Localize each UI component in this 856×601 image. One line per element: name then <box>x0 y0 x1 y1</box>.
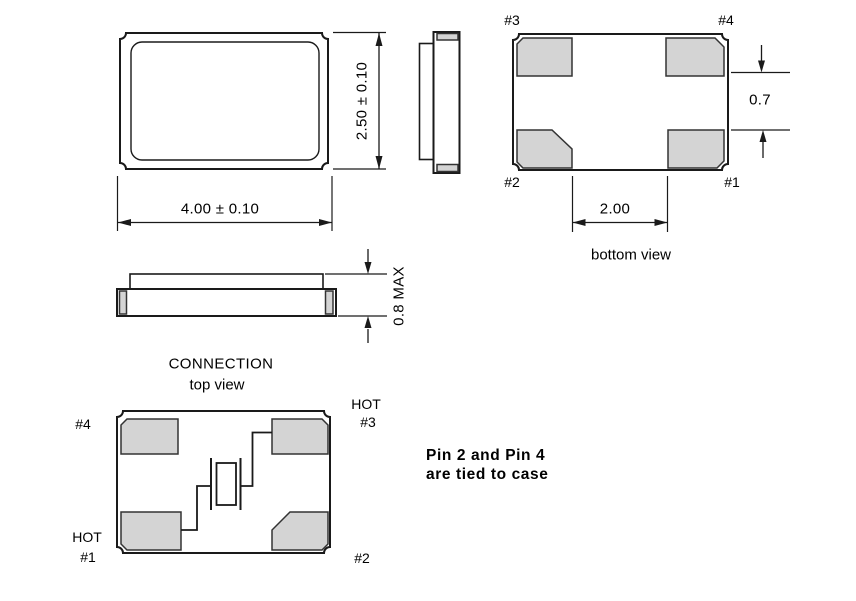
side-horizontal-base <box>117 289 336 316</box>
crystal-symbol <box>181 433 272 531</box>
connection-pin1-label: #1 <box>80 549 96 565</box>
pad-pin1 <box>668 130 724 168</box>
wire-to-pin3 <box>241 433 273 487</box>
package-drawing-canvas: 4.00 ± 0.10 2.50 ± 0.10 #3 #4 #2 #1 0.7 … <box>0 0 856 601</box>
side-horizontal-pad-right <box>326 291 334 314</box>
pin-note-line1: Pin 2 and Pin 4 <box>426 446 548 465</box>
conn-pad-pin3 <box>272 419 328 454</box>
bottom-view-pin4-label: #4 <box>718 12 734 28</box>
crystal-body <box>217 463 237 505</box>
pad-pin2 <box>517 130 572 168</box>
top-view-outer-outline <box>120 33 328 169</box>
dim-pitch-arrow-right <box>655 219 668 226</box>
dim-pad-arrow-bottom <box>760 130 767 142</box>
dim-thickness-arrow-bottom <box>365 316 372 328</box>
dim-width-arrow-left <box>118 219 131 226</box>
pin-note-line2: are tied to case <box>426 465 548 484</box>
pad-dim-label: 0.7 <box>749 91 771 108</box>
wire-to-pin1 <box>181 486 211 530</box>
connection-pin3-label: #3 <box>360 414 376 430</box>
dim-height-arrow-top <box>376 33 383 46</box>
diagram-svg <box>0 0 856 601</box>
conn-pad-pin1 <box>121 512 181 550</box>
side-vertical-lid <box>420 44 434 160</box>
connection-hot-bottom-label: HOT <box>72 529 102 545</box>
dim-width-arrow-right <box>319 219 332 226</box>
pin-note: Pin 2 and Pin 4 are tied to case <box>426 446 548 484</box>
pad-pin4 <box>666 38 724 76</box>
conn-pad-pin4 <box>121 419 178 454</box>
top-view <box>120 33 328 169</box>
dim-thickness-arrow-top <box>365 262 372 274</box>
pad-pin3 <box>517 38 572 76</box>
side-vertical-pad-bottom <box>437 165 458 172</box>
bottom-view-pin2-label: #2 <box>504 174 520 190</box>
bottom-view-pin3-label: #3 <box>504 12 520 28</box>
dim-pitch-arrow-left <box>573 219 586 226</box>
top-view-height-dim-label: 2.50 ± 0.10 <box>354 62 371 140</box>
connection-title: CONNECTION <box>169 356 274 373</box>
dim-height-arrow-bottom <box>376 156 383 169</box>
top-view-lid-outline <box>131 42 319 160</box>
bottom-view <box>513 34 728 170</box>
side-vertical-base <box>434 32 460 173</box>
side-vertical-pad-top <box>437 34 458 41</box>
bottom-view-pin1-label: #1 <box>724 174 740 190</box>
top-view-width-dim-label: 4.00 ± 0.10 <box>181 201 259 218</box>
connection-pin2-label: #2 <box>354 550 370 566</box>
side-view-vertical <box>420 32 460 173</box>
side-horizontal-pad-left <box>120 291 127 314</box>
connection-pin4-label: #4 <box>75 416 91 432</box>
connection-hot-top-label: HOT <box>351 396 381 412</box>
side-view-horizontal <box>117 274 336 316</box>
bottom-view-caption: bottom view <box>591 247 671 264</box>
connection-view <box>117 411 330 553</box>
dim-pad-arrow-top <box>758 61 765 73</box>
pitch-dim-label: 2.00 <box>600 201 630 218</box>
conn-pad-pin2 <box>272 512 328 550</box>
side-horizontal-lid <box>130 274 323 289</box>
thickness-dim-label: 0.8 MAX <box>391 266 408 326</box>
connection-subtitle: top view <box>189 376 244 393</box>
